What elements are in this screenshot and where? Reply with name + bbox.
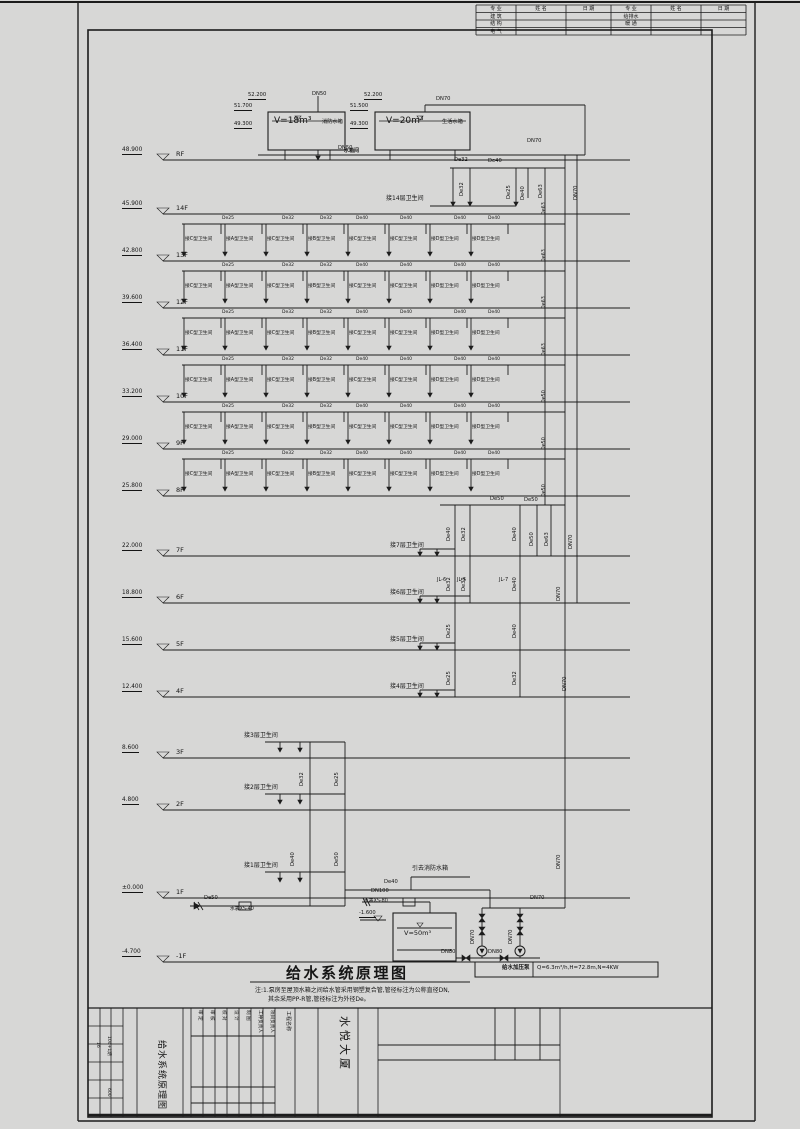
branch-label: 接C型卫生间 <box>349 425 388 430</box>
pipe-label: De25 <box>222 405 234 410</box>
pipe-label: De40 <box>488 405 500 410</box>
tank-elevation: 52.200 <box>364 93 382 100</box>
branch-label: 接B型卫生间 <box>308 284 347 289</box>
pipe-label: DN70 <box>557 587 562 601</box>
tank-elevation: 49.300 <box>234 122 252 129</box>
pipe-label: De50 <box>530 532 535 546</box>
pipe-label: De40 <box>454 405 466 410</box>
pipe-label: De50 <box>524 498 538 503</box>
pipe-label: De32 <box>320 311 332 316</box>
branch-label: 接D型卫生间 <box>472 378 511 383</box>
branch-label: 接7层卫生间 <box>390 543 424 549</box>
riser-tag: JL-7 <box>499 578 508 583</box>
branch-label: 接C型卫生间 <box>349 331 388 336</box>
branch-label: 接C型卫生间 <box>390 284 429 289</box>
riser-tag: JL-6 <box>437 578 446 583</box>
pipe-label: DN70 <box>436 97 450 102</box>
pipe-label: De32 <box>513 671 518 685</box>
branch-label: 接D型卫生间 <box>431 237 470 242</box>
branch-label: 接A型卫生间 <box>226 378 265 383</box>
floor-elevation: 18.800 <box>122 590 142 598</box>
pipe-label: De40 <box>356 358 368 363</box>
pipe-label: De40 <box>291 852 296 866</box>
pipe-label: De40 <box>513 527 518 541</box>
tank-elevation: 51.700 <box>234 104 252 111</box>
branch-label: 接B型卫生间 <box>308 425 347 430</box>
branch-label: 接C型卫生间 <box>390 331 429 336</box>
meter-label: 水表XS-40 <box>230 907 254 912</box>
titleblock-column-label: 工种负责人 <box>256 1010 261 1033</box>
pipe-label: De40 <box>521 186 526 200</box>
pipe-label: De40 <box>400 264 412 269</box>
tank-volume: V=20m³ <box>386 117 424 126</box>
pipe-label: De40 <box>400 358 412 363</box>
sump-elevation: -1.600 <box>359 911 376 918</box>
revision-table-header: 专 业 <box>478 7 514 12</box>
branch-label: 接C型卫生间 <box>185 378 224 383</box>
pipe-label: DN70 <box>471 930 476 944</box>
pump-spec-value: Q=6.3m³/h,H=72.8m,N=4KW <box>537 966 619 972</box>
pipe-label: De40 <box>356 217 368 222</box>
pipe-label: De40 <box>447 527 452 541</box>
floor-elevation: 36.400 <box>122 342 142 350</box>
pipe-label: De40 <box>356 452 368 457</box>
revision-table-header: 姓 名 <box>518 7 564 12</box>
branch-label: 接C型卫生间 <box>267 472 306 477</box>
branch-label: 接14层卫生间 <box>386 196 424 202</box>
branch-label: 接C型卫生间 <box>267 425 306 430</box>
floor-elevation: 12.400 <box>122 684 142 692</box>
titleblock-project-name: 水悦大厦 <box>338 1016 350 1072</box>
floor-elevation: 15.600 <box>122 637 142 645</box>
revision-table-cell: 暖 通 <box>613 22 649 27</box>
pipe-label: De40 <box>488 264 500 269</box>
pipe-label: De32 <box>320 217 332 222</box>
floor-elevation: 8.600 <box>122 745 139 753</box>
branch-label: 接B型卫生间 <box>308 378 347 383</box>
pipe-label: De40 <box>488 358 500 363</box>
titleblock-column-label: 设 计 <box>232 1010 237 1021</box>
pipe-label: De32 <box>320 452 332 457</box>
pipe-label: De32 <box>460 182 465 196</box>
pipe-label: De63 <box>545 532 550 546</box>
revision-table-cell: 建 筑 <box>478 15 514 20</box>
floor-elevation: 29.000 <box>122 436 142 444</box>
pipe-label: DN70 <box>557 855 562 869</box>
pipe-label: De32 <box>282 452 294 457</box>
floor-label: 9F <box>176 440 184 447</box>
branch-label: 接C型卫生间 <box>390 378 429 383</box>
revision-table-cell: 给排水 <box>613 15 649 20</box>
pipe-label: DN70 <box>527 139 541 144</box>
pipe-label: De40 <box>400 405 412 410</box>
branch-label: 接C型卫生间 <box>267 237 306 242</box>
pipe-label: De50 <box>204 896 218 901</box>
pipe-label: De32 <box>282 358 294 363</box>
pipe-label: De40 <box>400 452 412 457</box>
pipe-label: De40 <box>356 264 368 269</box>
floor-elevation: -4.700 <box>122 949 141 957</box>
floor-label: RF <box>176 151 184 158</box>
branch-label: 接C型卫生间 <box>349 284 388 289</box>
pipe-label: De25 <box>507 185 512 199</box>
titleblock-column-label: 审 核 <box>208 1010 213 1021</box>
pipe-label: De40 <box>384 880 398 885</box>
pipe-label: De40 <box>513 577 518 591</box>
branch-label: 接D型卫生间 <box>472 237 511 242</box>
floor-label: 5F <box>176 641 184 648</box>
branch-label: 接D型卫生间 <box>431 284 470 289</box>
floor-label: -1F <box>176 953 186 960</box>
pipe-label: De40 <box>454 452 466 457</box>
pipe-label: De40 <box>454 358 466 363</box>
revision-table-header: 专 业 <box>613 7 649 12</box>
floor-label: 6F <box>176 594 184 601</box>
pipe-label: De40 <box>400 217 412 222</box>
pipe-label: De40 <box>454 264 466 269</box>
pipe-label: DN80 <box>488 950 502 955</box>
titleblock-column-label: 制 图 <box>244 1010 249 1021</box>
branch-label: 接C型卫生间 <box>390 237 429 242</box>
pipe-label: De32 <box>282 405 294 410</box>
pipe-label: De32 <box>320 405 332 410</box>
floor-elevation: ±0.000 <box>122 885 143 893</box>
riser-size-label: De63 <box>542 249 547 262</box>
pipe-label: De32 <box>454 158 468 163</box>
branch-label: 接D型卫生间 <box>431 331 470 336</box>
branch-label: 接B型卫生间 <box>308 237 347 242</box>
pipe-label: De40 <box>356 311 368 316</box>
pipe-label: De32 <box>300 772 305 786</box>
branch-label: 接C型卫生间 <box>185 331 224 336</box>
note-line-2: 其余采用PP-R管,管径标注为外径De。 <box>268 997 370 1003</box>
titleblock-project-label: 工程名称 <box>285 1011 290 1031</box>
tank-elevation: 51.500 <box>350 104 368 111</box>
branch-label: 接D型卫生间 <box>431 425 470 430</box>
branch-label: 接B型卫生间 <box>308 331 347 336</box>
pipe-label: De25 <box>447 624 452 638</box>
branch-label: 接4层卫生间 <box>390 684 424 690</box>
pipe-label: De32 <box>282 217 294 222</box>
pipe-label: De40 <box>454 217 466 222</box>
tank-name: 消防水箱 <box>322 120 343 125</box>
riser-size-label: De63 <box>542 296 547 309</box>
pipe-label: De32 <box>447 577 452 591</box>
branch-label: 接C型卫生间 <box>390 425 429 430</box>
branch-label: 接D型卫生间 <box>472 284 511 289</box>
pipe-label: DN80 <box>441 950 455 955</box>
branch-label: 接C型卫生间 <box>349 237 388 242</box>
floor-label: 14F <box>176 205 188 212</box>
branch-label: 接D型卫生间 <box>472 425 511 430</box>
branch-label: 接6层卫生间 <box>390 590 424 596</box>
pipe-label: De32 <box>320 358 332 363</box>
floor-label: 13F <box>176 252 188 259</box>
floor-elevation: 22.000 <box>122 543 142 551</box>
riser-size-label: De63 <box>542 343 547 356</box>
branch-label: 接D型卫生间 <box>431 472 470 477</box>
branch-label: 接C型卫生间 <box>349 472 388 477</box>
revision-table-header: 日 期 <box>703 7 744 12</box>
pipe-label: De63 <box>539 184 544 198</box>
branch-label: 接D型卫生间 <box>472 331 511 336</box>
tank-name: 生活水箱 <box>442 120 463 125</box>
branch-label: 接C型卫生间 <box>390 472 429 477</box>
to-fire-tank-label: 引去消防水箱 <box>412 866 448 872</box>
meter-label: 水表XS-80 <box>364 899 388 904</box>
drawing-title: 给水系统原理图 <box>286 962 409 983</box>
branch-label: 接A型卫生间 <box>226 472 265 477</box>
pipe-label: De32 <box>282 311 294 316</box>
pipe-label: De40 <box>488 159 502 164</box>
branch-label: 接A型卫生间 <box>226 284 265 289</box>
titleblock-column-label: 校 对 <box>220 1010 225 1021</box>
label-overlay: 给水系统原理图 注:1.泵房至屋顶水箱之间给水管采用钢塑复合管,管径标注为公称直… <box>0 0 800 1129</box>
revision-table-cell: 电 气 <box>478 30 514 35</box>
pipe-label: De40 <box>488 217 500 222</box>
branch-label: 接2层卫生间 <box>244 785 278 791</box>
floor-elevation: 25.800 <box>122 483 142 491</box>
branch-label: 接5层卫生间 <box>390 637 424 643</box>
pump-spec-label: 给水加压泵 <box>502 966 530 972</box>
pipe-label: De25 <box>222 452 234 457</box>
floor-label: 10F <box>176 393 188 400</box>
floor-elevation: 4.800 <box>122 797 139 805</box>
pipe-label: De40 <box>356 405 368 410</box>
note-line-1: 注:1.泵房至屋顶水箱之间给水管采用钢塑复合管,管径标注为公称直径DN, <box>255 988 450 994</box>
floor-elevation: 45.900 <box>122 201 142 209</box>
branch-label: 接C型卫生间 <box>267 331 306 336</box>
branch-label: 接A型卫生间 <box>226 237 265 242</box>
pipe-label: De40 <box>488 311 500 316</box>
pipe-label: De32 <box>462 527 467 541</box>
floor-label: 1F <box>176 889 184 896</box>
floor-label: 3F <box>176 749 184 756</box>
branch-label: 接A型卫生间 <box>226 425 265 430</box>
titleblock-drawing-name: 给水系统原理图 <box>156 1040 165 1110</box>
branch-label: 接1层卫生间 <box>244 863 278 869</box>
branch-label: 接C型卫生间 <box>267 284 306 289</box>
floor-label: 11F <box>176 346 188 353</box>
titleblock-cell: 600 <box>105 1088 110 1097</box>
pipe-label: De32 <box>462 577 467 591</box>
riser-size-label: De50 <box>542 437 547 450</box>
pipe-label: De25 <box>335 772 340 786</box>
riser-size-label: De50 <box>542 390 547 403</box>
tank-elevation: 49.300 <box>350 122 368 129</box>
titleblock-cell: 16 <box>94 1042 99 1048</box>
pipe-label: De25 <box>447 671 452 685</box>
revision-table-cell: 结 构 <box>478 22 514 27</box>
branch-label: 接C型卫生间 <box>349 378 388 383</box>
pipe-label: De25 <box>222 311 234 316</box>
branch-label: 接B型卫生间 <box>308 472 347 477</box>
pipe-label: DN70 <box>530 896 544 901</box>
branch-label: 接C型卫生间 <box>185 425 224 430</box>
branch-label: 接C型卫生间 <box>267 378 306 383</box>
branch-label: 接C型卫生间 <box>185 284 224 289</box>
floor-label: 2F <box>176 801 184 808</box>
pipe-label: DN70 <box>574 186 579 200</box>
pipe-label: DN50 <box>312 92 326 97</box>
pipe-label: De40 <box>513 624 518 638</box>
revision-table-header: 姓 名 <box>653 7 699 12</box>
titleblock-column-label: 审 定 <box>196 1010 201 1021</box>
floor-elevation: 39.600 <box>122 295 142 303</box>
floor-elevation: 48.900 <box>122 147 142 155</box>
branch-label: 接C型卫生间 <box>185 237 224 242</box>
pipe-label: DN50 <box>338 146 352 151</box>
titleblock-column-label: 项目负责人 <box>268 1010 273 1033</box>
drawing-sheet: 给水系统原理图 注:1.泵房至屋顶水箱之间给水管采用钢塑复合管,管径标注为公称直… <box>0 0 800 1129</box>
floor-label: 8F <box>176 487 184 494</box>
pipe-label: De25 <box>222 358 234 363</box>
pipe-label: De25 <box>222 217 234 222</box>
floor-label: 7F <box>176 547 184 554</box>
tank-volume: V=18m³ <box>274 117 312 126</box>
riser-size-label: De50 <box>542 484 547 497</box>
floor-label: 4F <box>176 688 184 695</box>
floor-elevation: 42.800 <box>122 248 142 256</box>
pipe-label: De32 <box>320 264 332 269</box>
branch-label: 接3层卫生间 <box>244 733 278 739</box>
pipe-label: De40 <box>488 452 500 457</box>
titleblock-cell: 104+1期 <box>105 1036 110 1056</box>
branch-label: 接C型卫生间 <box>185 472 224 477</box>
revision-table-header: 日 期 <box>568 7 609 12</box>
floor-elevation: 33.200 <box>122 389 142 397</box>
pipe-label: De40 <box>454 311 466 316</box>
pipe-label: De40 <box>400 311 412 316</box>
pipe-label: De25 <box>222 264 234 269</box>
floor-label: 12F <box>176 299 188 306</box>
pipe-label: DN100 <box>371 889 389 894</box>
branch-label: 接D型卫生间 <box>431 378 470 383</box>
pipe-label: DN70 <box>509 930 514 944</box>
pipe-label: De50 <box>490 497 504 502</box>
tank-elevation: 52.200 <box>248 93 266 100</box>
pipe-label: De50 <box>335 852 340 866</box>
tank-volume: V=50m³ <box>404 930 431 937</box>
pipe-label: DN70 <box>569 535 574 549</box>
pipe-label: DN70 <box>563 677 568 691</box>
branch-label: 接A型卫生间 <box>226 331 265 336</box>
branch-label: 接D型卫生间 <box>472 472 511 477</box>
pipe-label: De32 <box>282 264 294 269</box>
riser-size-label: De63 <box>542 202 547 215</box>
